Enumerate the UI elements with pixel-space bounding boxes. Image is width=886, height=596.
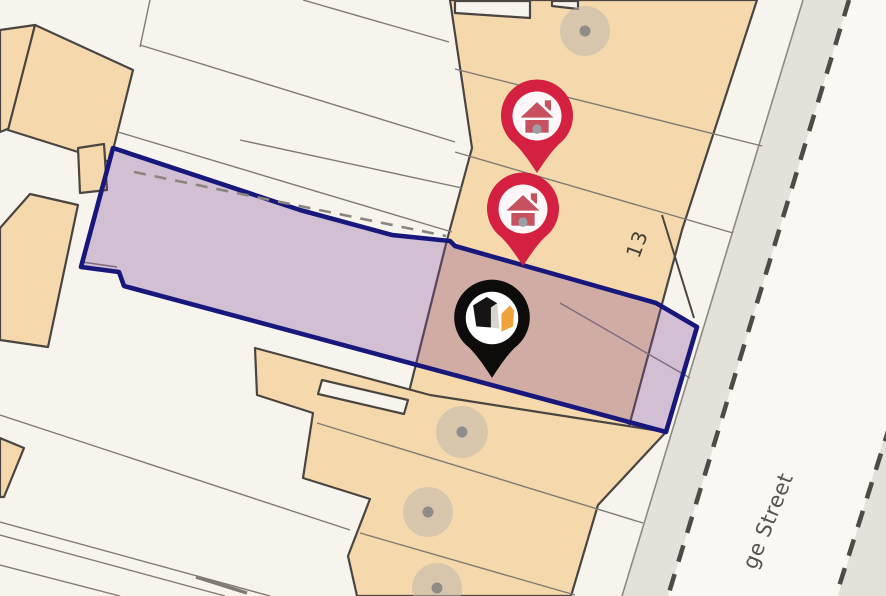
tree-trunk-dot: [580, 26, 591, 37]
tree-trunk-dot: [432, 583, 443, 594]
tree-trunk-dot: [423, 507, 434, 518]
tree-marker: [560, 6, 610, 56]
tree-marker: [436, 406, 488, 458]
map-svg: [0, 0, 886, 596]
map-canvas[interactable]: 13 ge Street: [0, 0, 886, 596]
house-door: [519, 217, 528, 227]
tree-marker: [403, 487, 453, 537]
house-door: [533, 124, 542, 134]
tree-trunk-dot: [457, 427, 468, 438]
